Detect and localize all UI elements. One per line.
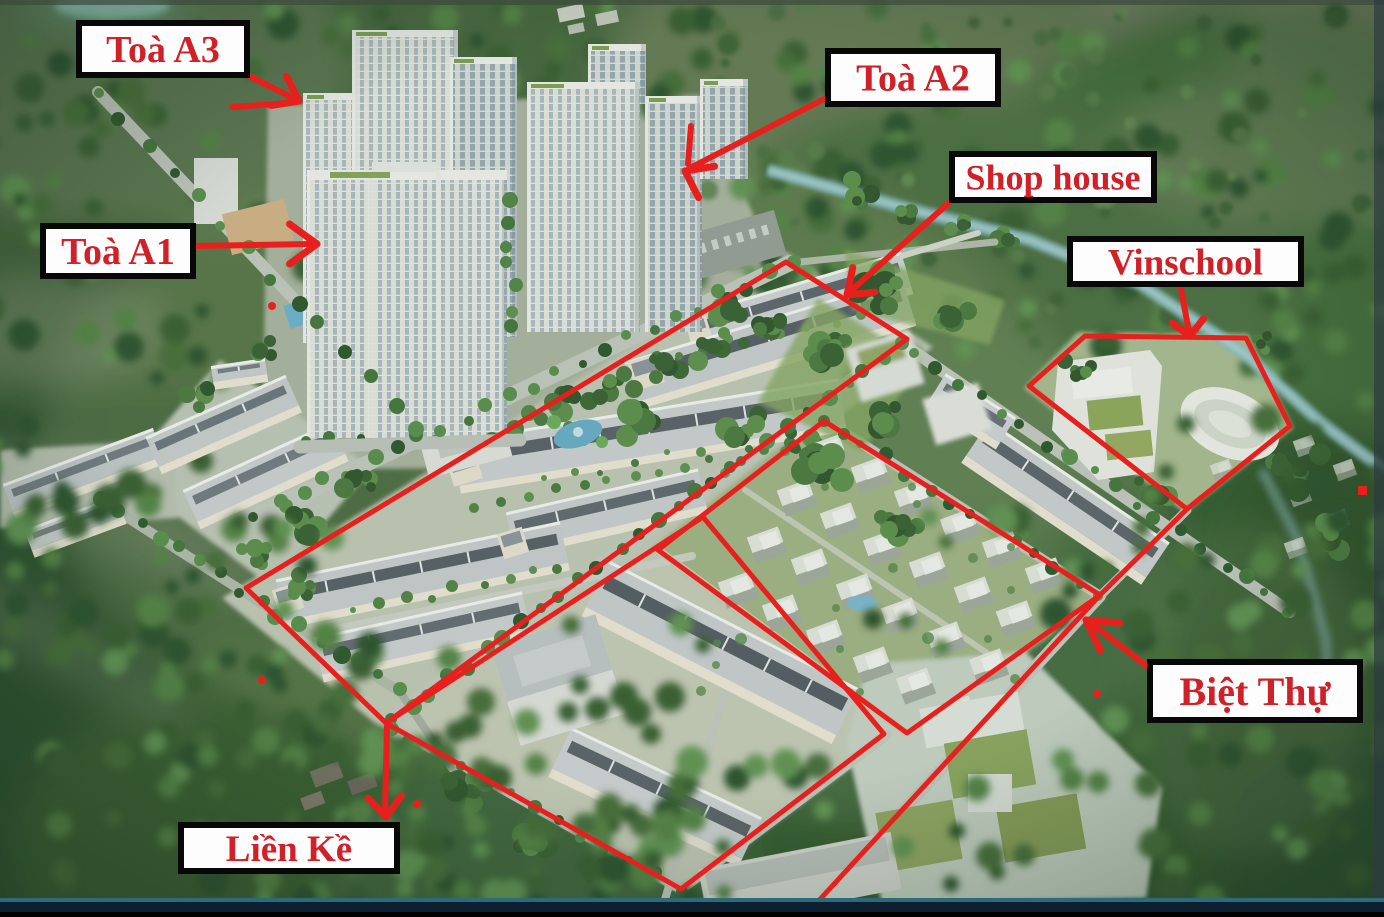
svg-text:Toà A2: Toà A2 (856, 58, 970, 100)
svg-text:Toà A3: Toà A3 (106, 29, 220, 71)
svg-text:Biệt Thự: Biệt Thự (1179, 669, 1331, 714)
svg-text:Liền Kề: Liền Kề (226, 829, 352, 870)
svg-text:Shop house: Shop house (965, 157, 1140, 197)
svg-text:Vinschool: Vinschool (1108, 242, 1263, 283)
svg-text:Toà A1: Toà A1 (61, 231, 175, 273)
